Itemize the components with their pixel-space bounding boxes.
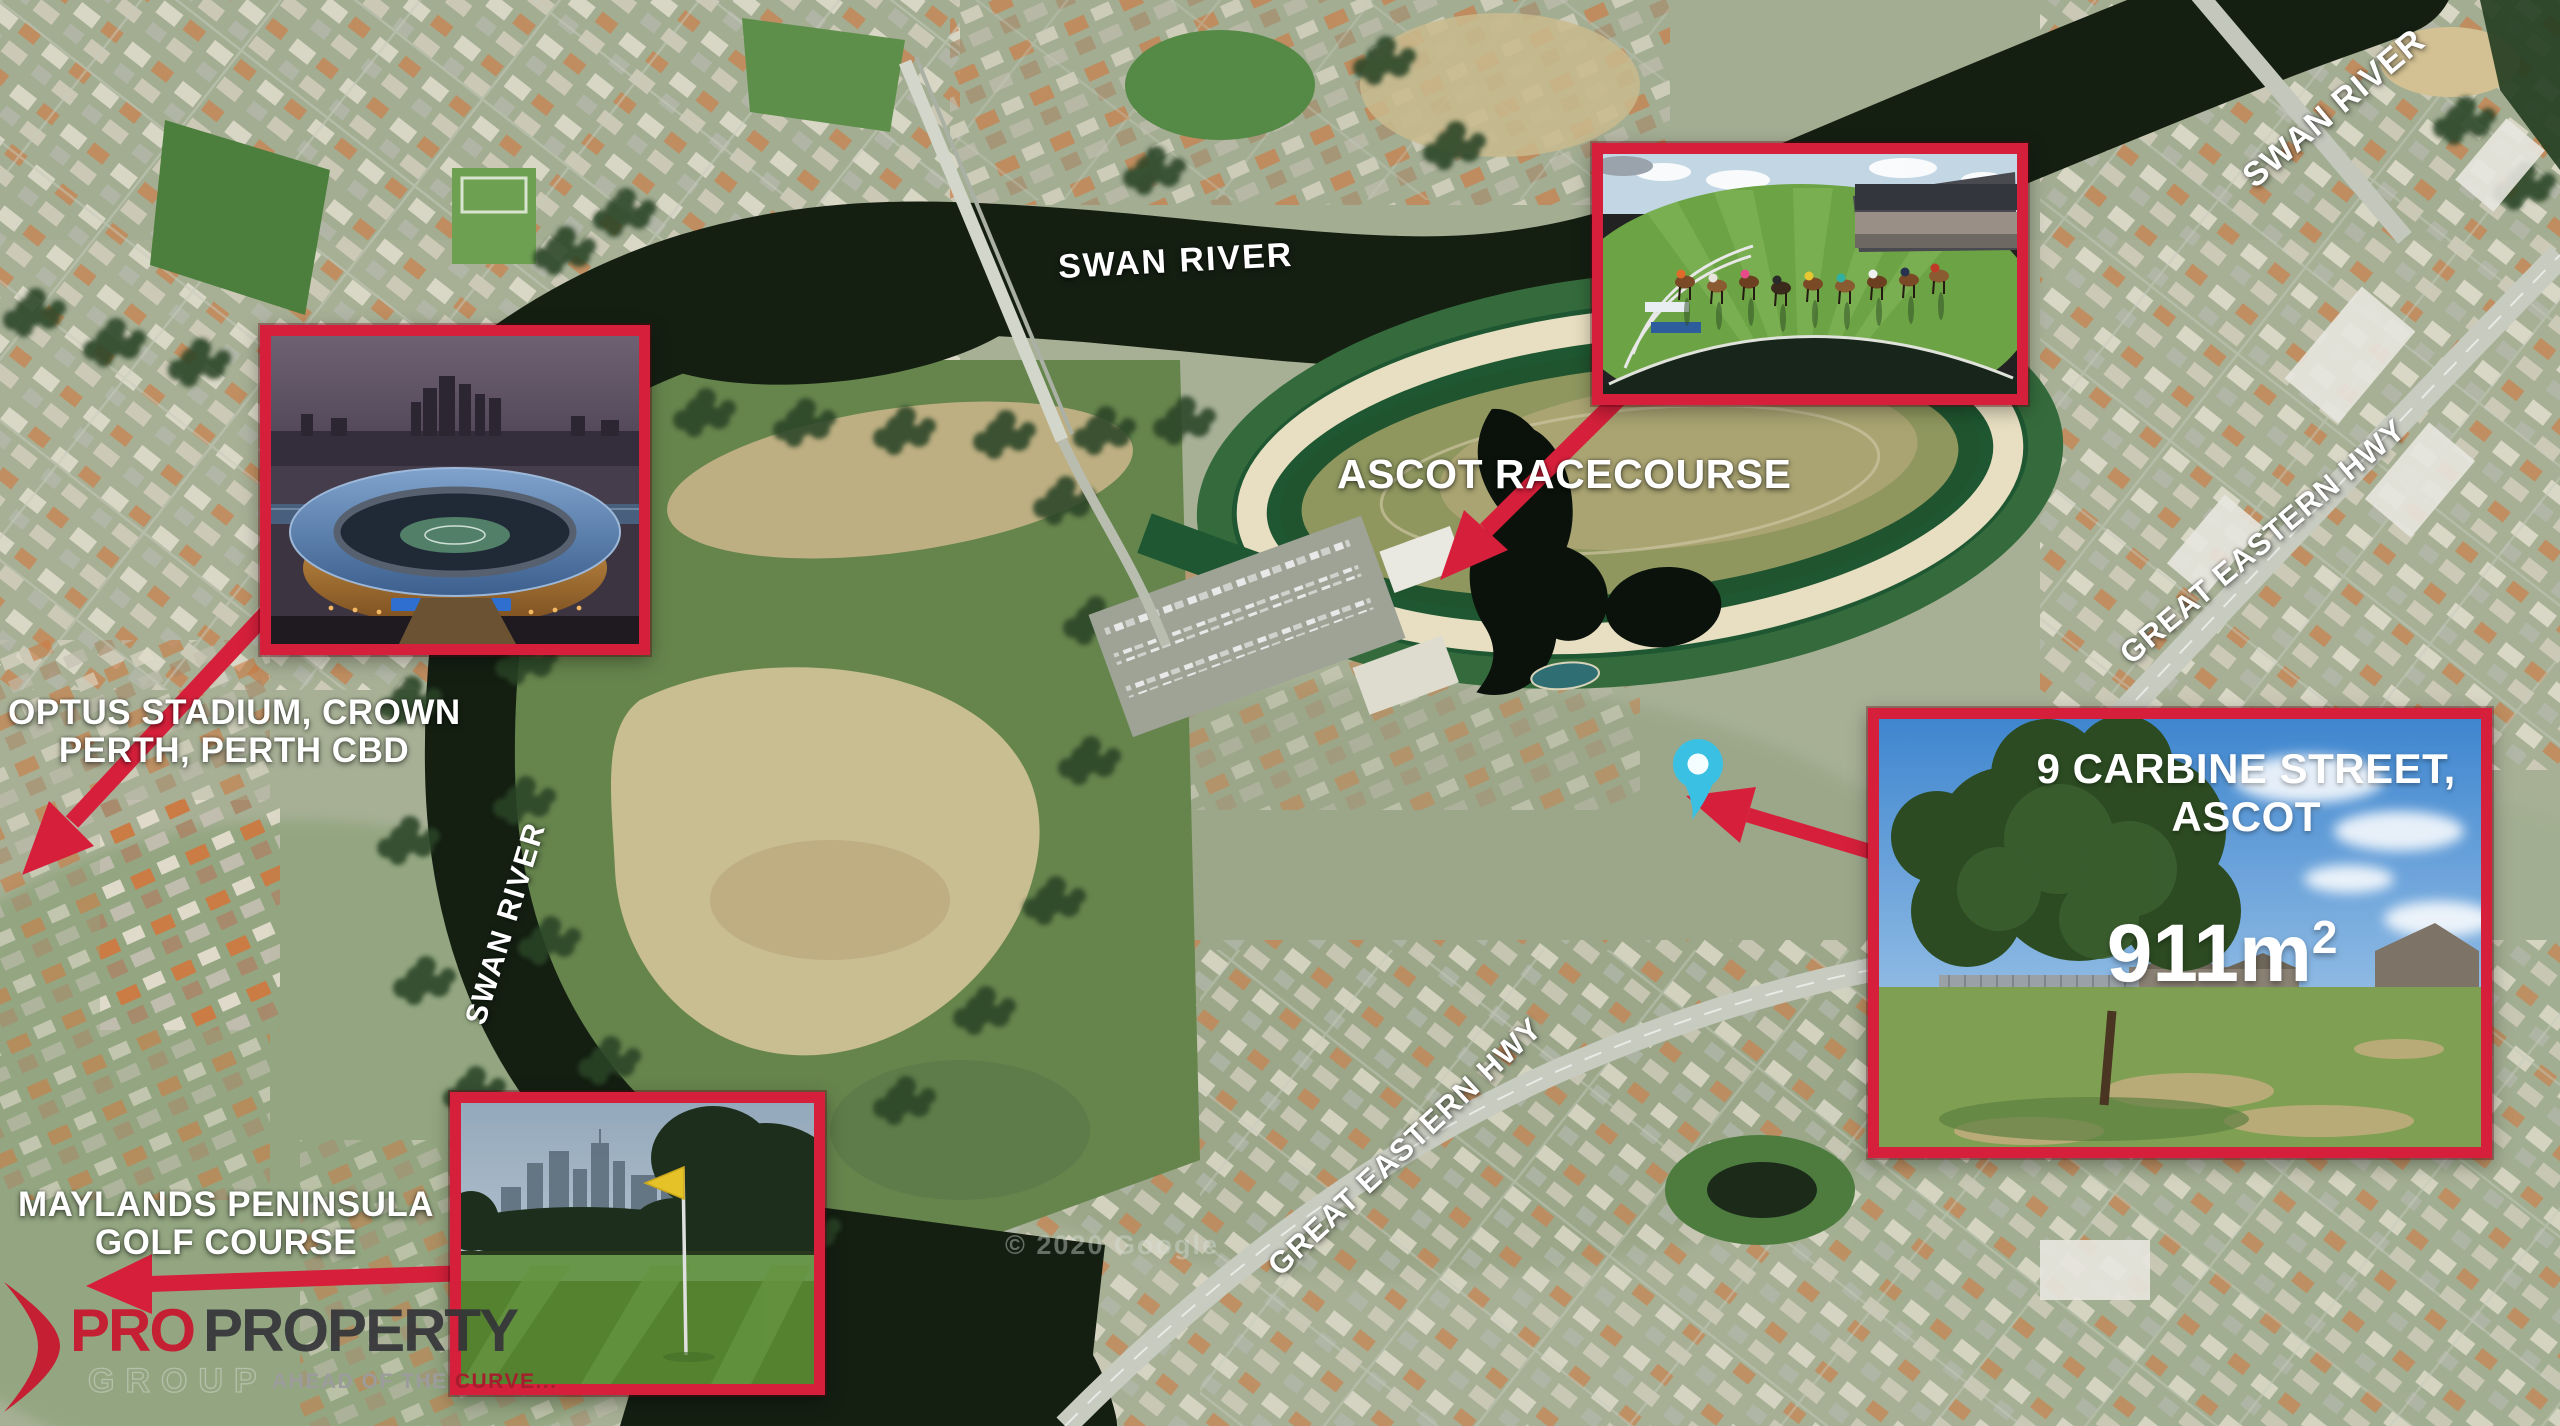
property-land-area: 911m2 [2048,907,2397,1001]
proproperty-logo: PROPROPERTY GROUP AHEAD OF THE CURVE... [0,1278,560,1426]
label-maylands-golf: MAYLANDS PENINSULA GOLF COURSE [0,1186,452,1262]
area-value: 911m [2107,908,2312,999]
logo-property: PROPERTY [203,1297,517,1364]
label-optus-line2: PERTH, PERTH CBD [8,732,460,770]
property-address-line1: 9 CARBINE STREET, [2023,745,2468,793]
aerial-marketing-map: SWAN RIVER SWAN RIVER SWAN RIVER ASCOT R… [0,0,2560,1426]
property-location-pin [1662,730,1734,826]
logo-group: GROUP [88,1362,268,1401]
logo-pro: PRO [70,1297,194,1364]
proproperty-chevron-icon [0,1280,64,1414]
property-photo-inset: 9 CARBINE STREET, ASCOT 911m2 [1868,708,2492,1158]
label-optus-line1: OPTUS STADIUM, CROWN [8,694,460,732]
label-maylands-line2: GOLF COURSE [0,1224,452,1262]
area-exponent: 2 [2312,911,2338,963]
logo-tagline: AHEAD OF THE CURVE... [272,1370,557,1394]
property-address: 9 CARBINE STREET, ASCOT [2023,745,2468,842]
label-maylands-line1: MAYLANDS PENINSULA [0,1186,452,1224]
ascot-racecourse-inset [1592,143,2028,405]
proproperty-wordmark: PROPROPERTY [70,1296,517,1365]
property-address-line2: ASCOT [2023,793,2468,841]
ascot-racecourse-photo [1603,154,2017,394]
label-optus-stadium: OPTUS STADIUM, CROWN PERTH, PERTH CBD [8,694,460,770]
optus-stadium-photo [271,336,639,644]
tagline-red: CURVE... [455,1370,558,1393]
tagline-gray: AHEAD OF THE [272,1370,455,1393]
optus-stadium-inset [260,325,650,655]
label-ascot-racecourse: ASCOT RACECOURSE [1337,452,1791,496]
